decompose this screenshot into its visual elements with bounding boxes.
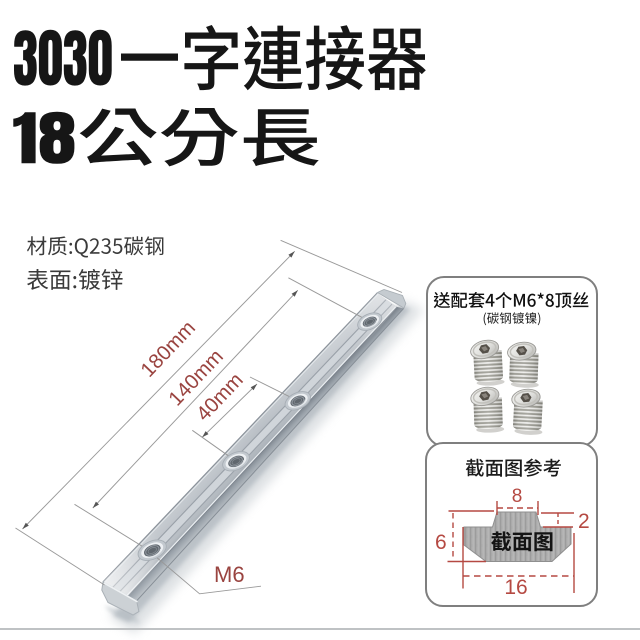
svg-text:8: 8 — [512, 486, 523, 507]
svg-text:2: 2 — [578, 510, 590, 533]
svg-text:6: 6 — [435, 531, 447, 554]
svg-text:M6: M6 — [214, 562, 245, 587]
svg-text:16: 16 — [504, 576, 527, 599]
